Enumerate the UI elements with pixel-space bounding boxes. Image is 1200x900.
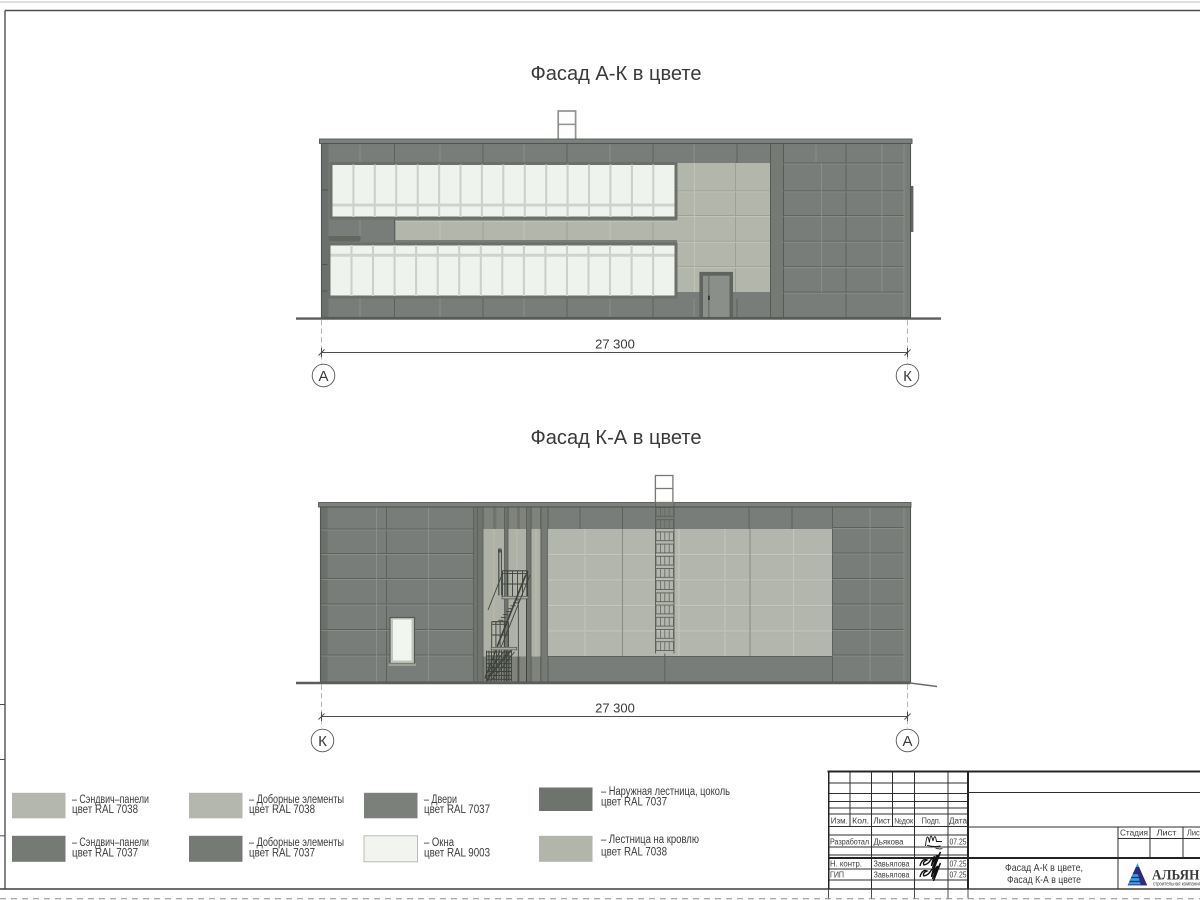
svg-text:Фасад А-К в цвете: Фасад А-К в цвете [531, 62, 702, 85]
svg-text:№док: №док [894, 817, 913, 826]
svg-text:Лист: Лист [874, 817, 891, 826]
svg-text:Н. контр.: Н. контр. [830, 860, 862, 869]
svg-text:цвет RAL 7038: цвет RAL 7038 [601, 846, 667, 858]
svg-text:– Лестница на кровлю: – Лестница на кровлю [601, 834, 699, 846]
svg-text:Подп.: Подп. [922, 817, 941, 826]
svg-text:Изм.: Изм. [831, 817, 848, 826]
svg-text:Дата: Дата [949, 817, 968, 826]
svg-text:07.25: 07.25 [950, 871, 968, 880]
svg-text:цвет RAL 7037: цвет RAL 7037 [249, 847, 315, 859]
svg-text:А: А [902, 733, 912, 750]
svg-text:цвет RAL 7037: цвет RAL 7037 [424, 804, 490, 816]
svg-text:ГИП: ГИП [830, 871, 844, 880]
svg-text:Завьялова: Завьялова [874, 871, 911, 880]
svg-text:27 300: 27 300 [595, 337, 635, 352]
svg-text:Разработал: Разработал [830, 838, 869, 847]
svg-text:Дьякова: Дьякова [874, 838, 905, 847]
svg-text:Фасад А-К в цвете,: Фасад А-К в цвете, [1005, 862, 1083, 874]
svg-text:К: К [318, 733, 327, 750]
svg-text:07.25: 07.25 [950, 838, 968, 847]
svg-text:цвет RAL 7037: цвет RAL 7037 [601, 797, 667, 809]
svg-text:Стадия: Стадия [1120, 829, 1148, 838]
svg-text:цвет RAL 7038: цвет RAL 7038 [249, 804, 315, 816]
svg-text:Кол.: Кол. [852, 817, 869, 826]
svg-text:07.25: 07.25 [950, 860, 968, 869]
svg-text:цвет RAL 7037: цвет RAL 7037 [72, 847, 138, 859]
svg-text:Листов: Листов [1187, 829, 1200, 838]
svg-text:цвет RAL 9003: цвет RAL 9003 [424, 847, 490, 859]
svg-text:А: А [318, 368, 328, 385]
svg-text:Лист: Лист [1157, 829, 1177, 838]
svg-text:Завьялова: Завьялова [874, 860, 911, 869]
svg-text:цвет RAL 7038: цвет RAL 7038 [72, 804, 138, 816]
svg-text:К: К [903, 368, 912, 385]
svg-text:Фасад К-А в цвете: Фасад К-А в цвете [1007, 874, 1081, 886]
svg-text:Фасад К-А в цвете: Фасад К-А в цвете [531, 426, 702, 449]
svg-text:27 300: 27 300 [595, 701, 635, 716]
svg-text:строительная компания: строительная компания [1153, 882, 1200, 888]
